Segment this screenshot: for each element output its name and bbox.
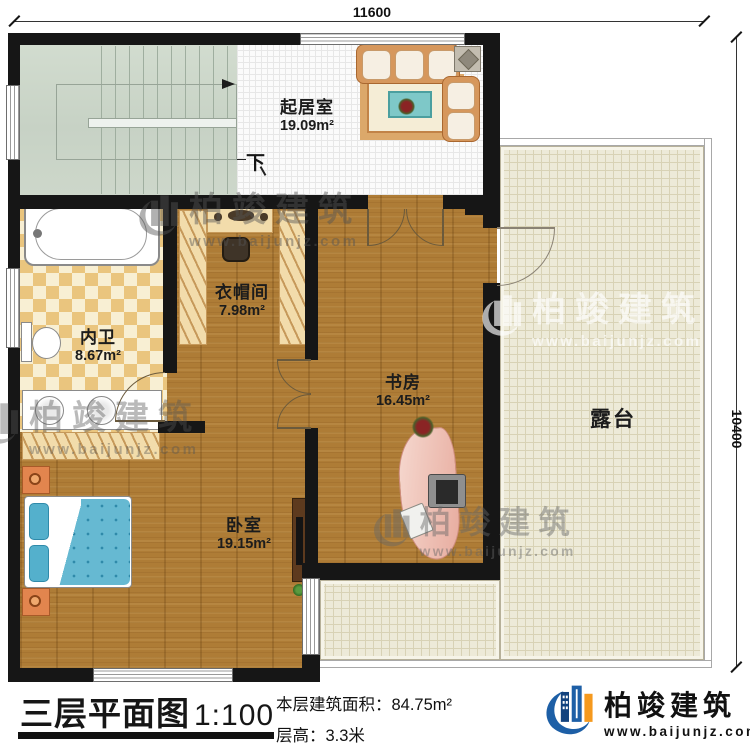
- wall: [163, 195, 177, 373]
- coffee-table: [388, 91, 432, 118]
- title-underline: [18, 732, 274, 739]
- door-arc: [368, 209, 405, 246]
- bedroom-wardrobe: [22, 432, 160, 460]
- plan-title: 三层平面图: [20, 687, 190, 735]
- computer-monitor: [428, 474, 466, 508]
- door-arc: [406, 209, 443, 246]
- window: [300, 33, 465, 45]
- bathtub-basin: [35, 208, 147, 260]
- door-leaf: [442, 209, 444, 246]
- desk-plant: [412, 416, 434, 438]
- bed-frame: [24, 496, 132, 588]
- terrace-parapet-bottom: [312, 660, 712, 668]
- room-name: 内卫: [60, 328, 136, 348]
- door-arc: [497, 228, 555, 286]
- door-arc: [277, 360, 311, 394]
- wall: [305, 428, 318, 563]
- room-label-terrace: 露台: [568, 408, 658, 432]
- wall: [302, 655, 320, 669]
- sofa-cushion: [362, 50, 391, 80]
- window: [302, 578, 320, 655]
- room-name: 起居室: [272, 98, 342, 118]
- sofa-cushion: [395, 50, 424, 80]
- toilet-tank: [21, 322, 32, 362]
- wall: [465, 195, 500, 215]
- table-flowers: [398, 98, 415, 115]
- sink: [35, 396, 64, 425]
- room-area: 19.15m²: [206, 536, 282, 553]
- sink: [87, 396, 116, 425]
- room-area: 8.67m²: [60, 348, 136, 365]
- wall: [8, 668, 93, 682]
- window: [6, 268, 20, 348]
- window: [6, 85, 20, 160]
- toilet-bowl: [32, 327, 61, 359]
- wall: [302, 563, 500, 580]
- room-label-living: 起居室 19.09m²: [272, 98, 342, 134]
- dimension-line-top: [14, 21, 705, 22]
- bathtub-faucet: [33, 229, 42, 238]
- stair-direction-arrow: [222, 79, 235, 89]
- room-label-cloakroom: 衣帽间 7.98m²: [207, 283, 277, 319]
- stair-leader-line: [237, 159, 246, 160]
- wall: [305, 195, 318, 360]
- closet-left: [179, 210, 207, 345]
- room-area: 19.09m²: [272, 118, 342, 135]
- dimension-right-label: 10400: [729, 399, 745, 459]
- closet-right: [279, 210, 307, 345]
- wall: [233, 668, 320, 682]
- building-logo-icon: [540, 682, 598, 740]
- tv: [296, 517, 303, 565]
- room-name: 书房: [368, 373, 438, 393]
- brand-name: 柏竣建筑: [604, 684, 750, 724]
- room-area: 16.45m²: [368, 393, 438, 410]
- bed-pillow: [29, 503, 49, 540]
- plan-title-block: 三层平面图 1:100: [20, 687, 274, 735]
- door-leaf: [497, 227, 555, 229]
- sofa-cushion: [447, 82, 475, 110]
- brand-url: www.baijunjz.com: [604, 724, 750, 739]
- sofa-cushion: [447, 112, 475, 140]
- monitor-screen: [436, 480, 458, 504]
- door-leaf: [115, 420, 165, 422]
- terrace-parapet-right: [704, 138, 712, 668]
- wall: [158, 421, 205, 433]
- wall: [8, 33, 20, 85]
- brand-block: 柏竣建筑 www.baijunjz.com: [540, 682, 750, 740]
- floor-height-text: 层高：3.3米: [276, 722, 452, 746]
- floor-plan-canvas: 下: [0, 0, 750, 747]
- door-arc: [115, 372, 165, 422]
- nightstand: [22, 466, 50, 494]
- room-name: 卧室: [206, 516, 282, 536]
- nightstand-knob: [29, 473, 41, 485]
- dresser-mirror: [228, 210, 254, 221]
- dresser-stool: [222, 237, 250, 262]
- room-name: 露台: [568, 408, 658, 432]
- dresser-item: [260, 213, 268, 221]
- door-leaf: [367, 209, 369, 246]
- room-name: 衣帽间: [207, 283, 277, 303]
- room-area: 7.98m²: [207, 303, 277, 320]
- nightstand-knob: [29, 595, 41, 607]
- wall: [483, 283, 500, 580]
- side-table-lamp: [458, 49, 479, 70]
- terrace-parapet-top: [497, 138, 712, 146]
- window: [93, 668, 233, 682]
- room-label-study: 书房 16.45m²: [368, 373, 438, 409]
- room-label-bathroom: 内卫 8.67m²: [60, 328, 136, 364]
- floor-area-text: 本层建筑面积：84.75m²: [276, 691, 452, 715]
- door-leaf: [277, 427, 311, 429]
- bed-pillow: [29, 545, 49, 582]
- dimension-top-label: 11600: [332, 4, 412, 20]
- wall: [8, 160, 20, 268]
- plan-scale: 1:100: [194, 699, 274, 733]
- terrace-floor-lower: [320, 580, 500, 660]
- sofa-corner: [442, 76, 480, 142]
- side-table: [454, 46, 481, 72]
- room-label-bedroom: 卧室 19.15m²: [206, 516, 282, 552]
- door-leaf: [277, 359, 311, 361]
- door-arc: [277, 394, 311, 428]
- nightstand: [22, 588, 50, 616]
- bed-sheet-fold: [53, 499, 81, 585]
- terrace-floor: [500, 146, 704, 660]
- dresser-item: [214, 213, 222, 221]
- wall: [8, 348, 20, 668]
- stair-landing-rail: [88, 118, 237, 128]
- bathtub: [24, 200, 160, 266]
- dimension-line-right: [736, 37, 737, 668]
- plan-stats: 本层建筑面积：84.75m² 层高：3.3米: [276, 691, 452, 746]
